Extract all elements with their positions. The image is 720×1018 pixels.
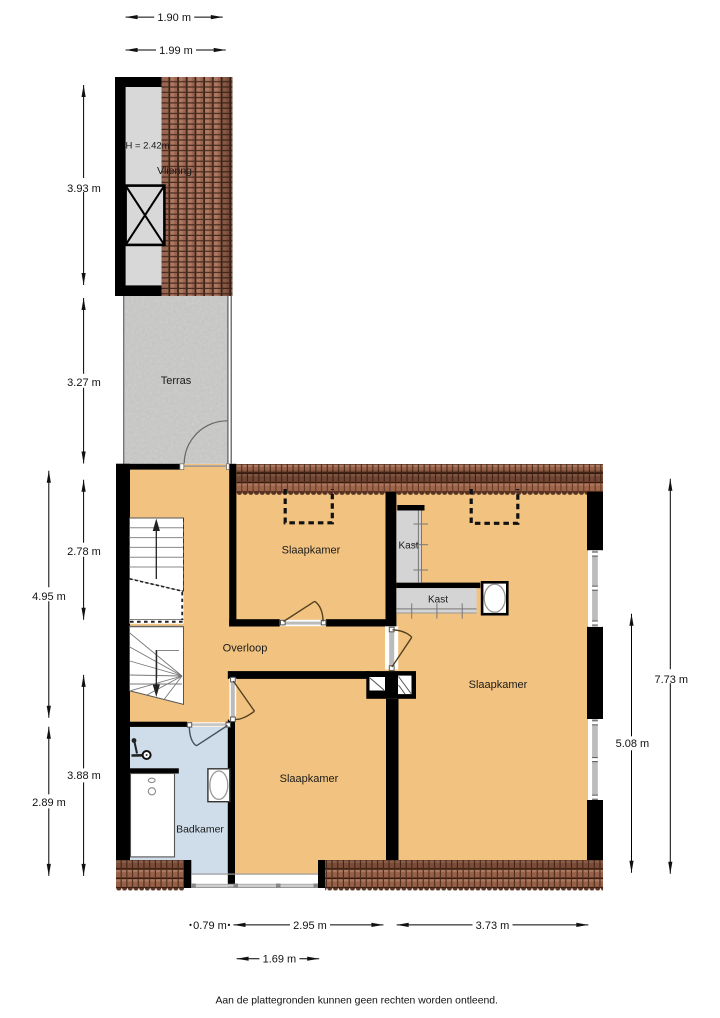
svg-text:3.93 m: 3.93 m	[67, 183, 101, 195]
svg-text:Slaapkamer: Slaapkamer	[280, 773, 339, 785]
svg-text:Aan de plattegronden kunnen ge: Aan de plattegronden kunnen geen rechten…	[215, 996, 498, 1007]
svg-text:2.78 m: 2.78 m	[67, 546, 101, 558]
svg-text:1.69 m: 1.69 m	[263, 954, 297, 966]
svg-text:3.88 m: 3.88 m	[67, 770, 101, 782]
svg-text:Kast: Kast	[428, 595, 448, 606]
svg-text:1.99 m: 1.99 m	[159, 45, 193, 57]
svg-text:7.73 m: 7.73 m	[654, 674, 688, 686]
svg-text:1.90 m: 1.90 m	[157, 12, 191, 24]
svg-text:Badkamer: Badkamer	[176, 824, 224, 836]
svg-text:2.89 m: 2.89 m	[32, 797, 66, 809]
svg-text:Terras: Terras	[161, 375, 192, 387]
svg-text:H = 2.42m: H = 2.42m	[125, 141, 169, 152]
svg-text:4.95 m: 4.95 m	[32, 591, 66, 603]
svg-text:Vliering: Vliering	[157, 165, 192, 177]
svg-text:Slaapkamer: Slaapkamer	[469, 679, 528, 691]
svg-text:3.73 m: 3.73 m	[476, 920, 510, 932]
svg-text:Slaapkamer: Slaapkamer	[282, 545, 341, 557]
svg-text:3.27 m: 3.27 m	[67, 377, 101, 389]
svg-text:5.08 m: 5.08 m	[616, 738, 650, 750]
svg-text:2.95 m: 2.95 m	[293, 920, 327, 932]
svg-text:Kast: Kast	[398, 541, 418, 552]
svg-text:0.79 m: 0.79 m	[193, 920, 227, 932]
svg-text:Overloop: Overloop	[223, 643, 268, 655]
